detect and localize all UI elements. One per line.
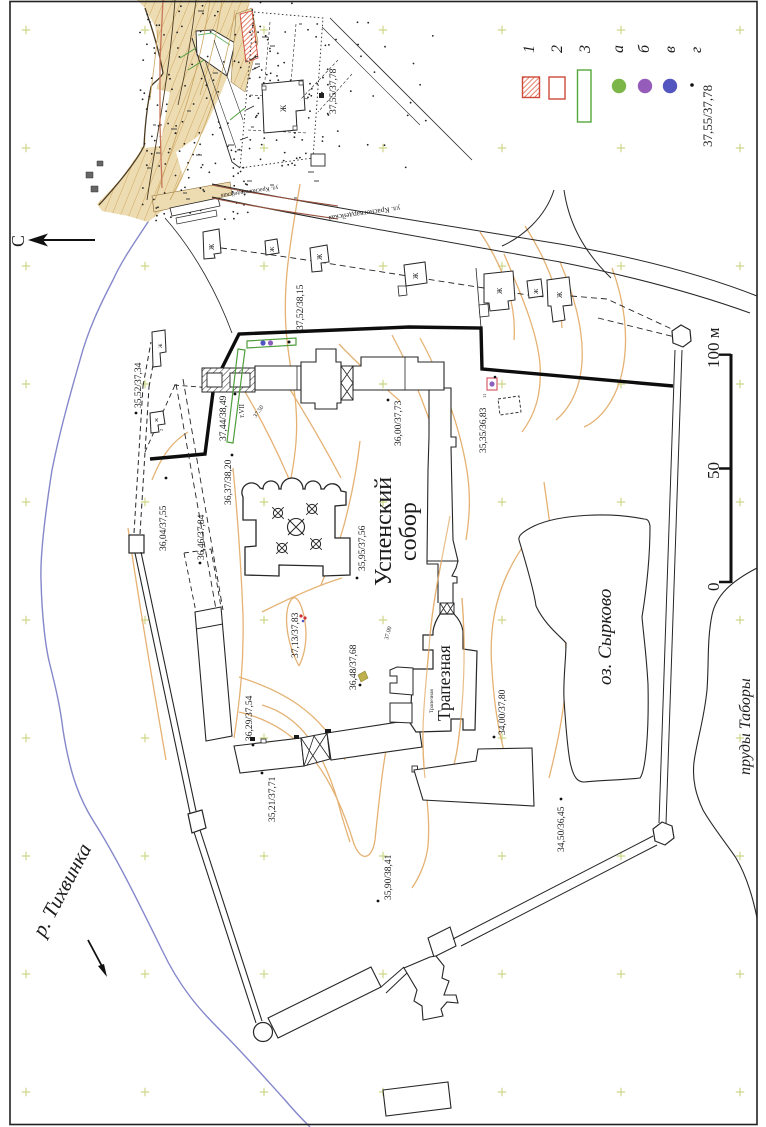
- svg-text:в: в: [662, 46, 679, 53]
- svg-text:Ж: Ж: [496, 287, 504, 294]
- svg-text:т.VII: т.VII: [238, 403, 246, 418]
- svg-text:100 м: 100 м: [704, 327, 723, 368]
- svg-text:11: 11: [482, 394, 487, 398]
- svg-text:оз. Сырково: оз. Сырково: [595, 589, 616, 685]
- svg-text:г: г: [688, 47, 705, 53]
- svg-text:34,50/36,45: 34,50/36,45: [557, 806, 567, 852]
- svg-text:2: 2: [159, 429, 164, 431]
- svg-text:Трапезная: Трапезная: [429, 689, 435, 713]
- svg-text:35,52/37,34: 35,52/37,34: [134, 362, 144, 408]
- svg-text:34,00/37,80: 34,00/37,80: [498, 689, 508, 735]
- svg-text:36,29/37,54: 36,29/37,54: [245, 695, 255, 741]
- svg-text:б: б: [636, 44, 653, 53]
- svg-text:Ж: Ж: [279, 104, 288, 112]
- svg-text:Ж: Ж: [159, 343, 164, 348]
- svg-text:Ж: Ж: [316, 253, 324, 260]
- svg-text:Ж: Ж: [208, 243, 216, 250]
- svg-text:35,90/38,41: 35,90/38,41: [384, 854, 394, 900]
- svg-text:36,00/37,73: 36,00/37,73: [394, 400, 404, 446]
- svg-text:37,55/37,78: 37,55/37,78: [700, 85, 715, 147]
- svg-text:36,37/38,20: 36,37/38,20: [224, 459, 234, 505]
- svg-text:1: 1: [521, 45, 538, 53]
- svg-text:0: 0: [704, 583, 723, 592]
- svg-text:собор: собор: [396, 502, 422, 561]
- svg-text:36,46/37,84: 36,46/37,84: [197, 514, 207, 560]
- svg-text:2: 2: [549, 45, 566, 53]
- svg-text:50: 50: [704, 462, 723, 479]
- svg-text:а: а: [610, 45, 627, 53]
- svg-text:Ж: Ж: [556, 291, 564, 298]
- svg-text:37,55/37,78: 37,55/37,78: [329, 68, 339, 114]
- svg-text:36,48/37,68: 36,48/37,68: [349, 644, 359, 690]
- svg-text:Трапезная: Трапезная: [434, 645, 454, 721]
- svg-text:37,13/37,83: 37,13/37,83: [291, 612, 301, 658]
- svg-text:Успенский: Успенский: [371, 477, 397, 586]
- svg-text:Ж: Ж: [534, 288, 540, 294]
- svg-text:35,95/37,56: 35,95/37,56: [358, 525, 368, 571]
- svg-text:35,21/37,71: 35,21/37,71: [268, 776, 278, 822]
- svg-text:36,04/37,55: 36,04/37,55: [159, 505, 169, 551]
- svg-text:3: 3: [577, 45, 594, 54]
- svg-text:35,35/36,83: 35,35/36,83: [479, 407, 489, 453]
- svg-text:Ж: Ж: [412, 272, 420, 279]
- svg-text:37,44/38,49: 37,44/38,49: [219, 395, 229, 441]
- svg-text:пруды Таборы: пруды Таборы: [737, 678, 754, 775]
- svg-text:37,52/38,15: 37,52/38,15: [296, 284, 306, 330]
- svg-text:Ж: Ж: [270, 246, 276, 252]
- svg-text:С: С: [8, 235, 28, 247]
